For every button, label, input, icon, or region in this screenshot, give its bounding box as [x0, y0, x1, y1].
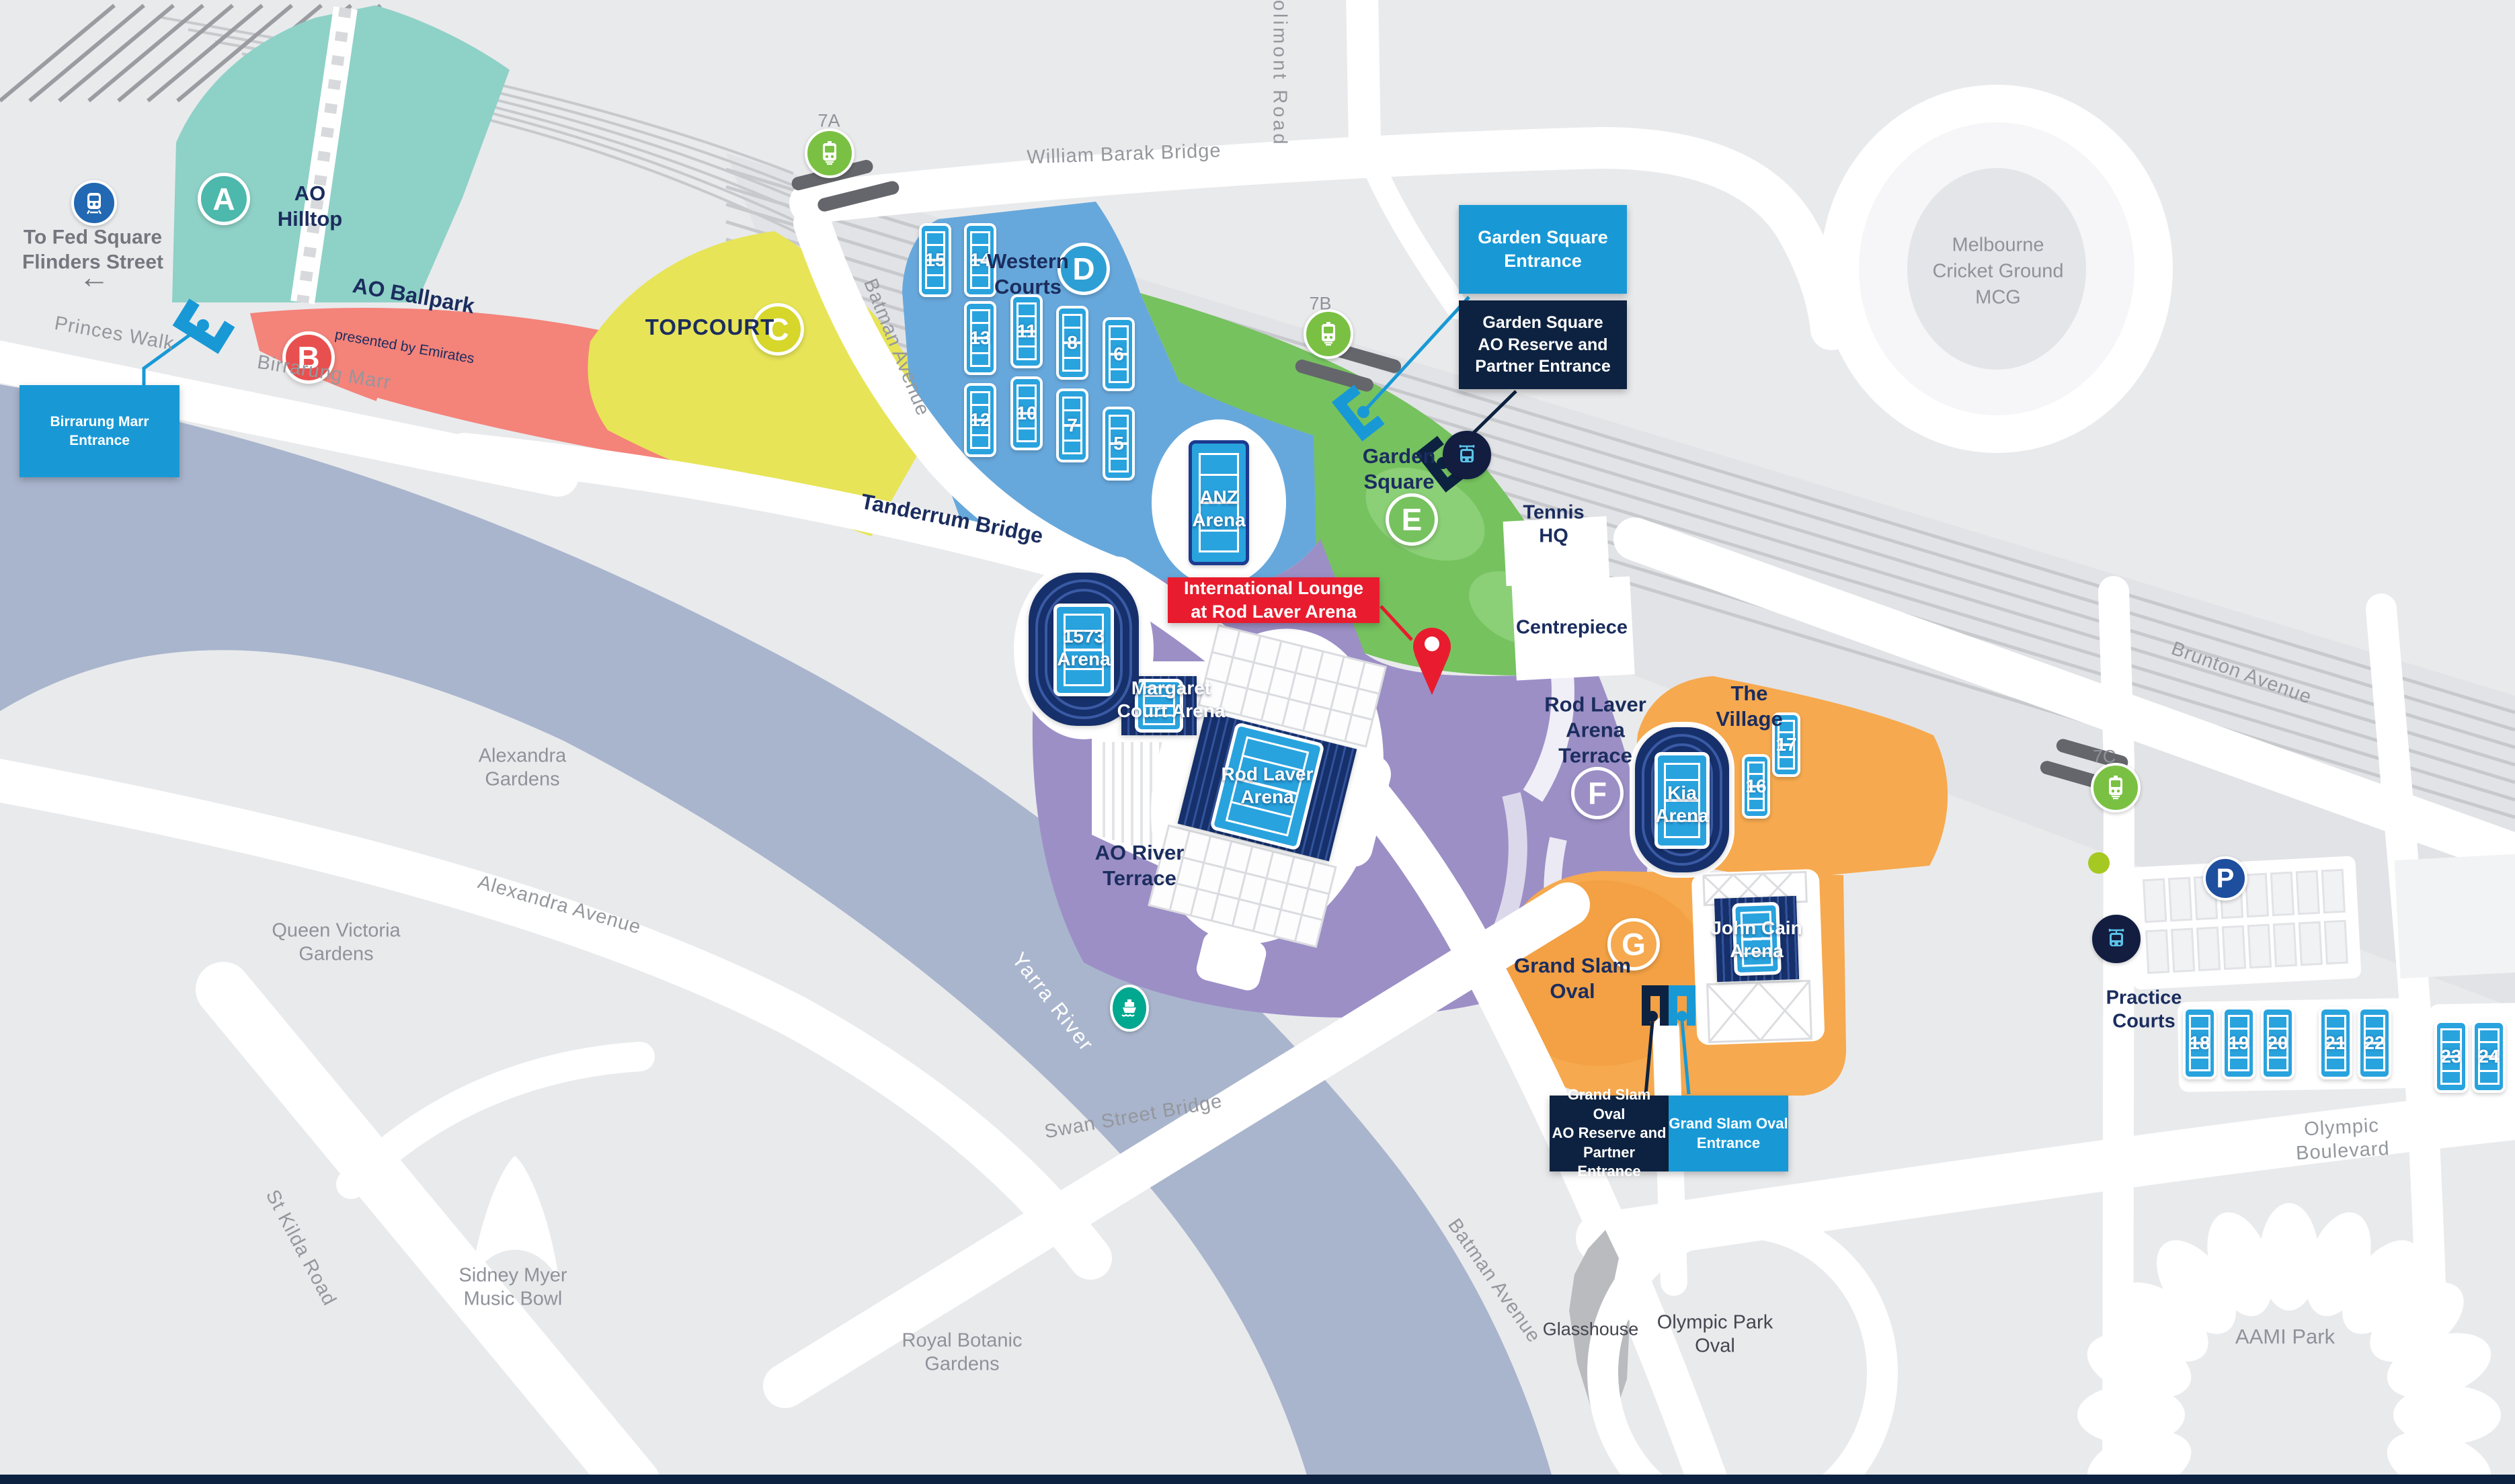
- zone-letter: A: [212, 181, 235, 217]
- zone-letter: B: [297, 339, 319, 376]
- court-number: 11: [1016, 321, 1037, 342]
- garden-square-reserve-entrance-label: Garden Square AO Reserve and Partner Ent…: [1459, 300, 1627, 389]
- tram-icon: [1304, 309, 1353, 359]
- court-number: 20: [2267, 1032, 2288, 1054]
- zone-badge-b: B: [282, 331, 335, 384]
- court: 23: [2434, 1020, 2468, 1093]
- court-number: 17: [1775, 734, 1796, 755]
- bus-icon: [1443, 431, 1491, 479]
- court-number: 18: [2189, 1032, 2210, 1054]
- court-number: 24: [2478, 1046, 2499, 1067]
- entrance-text: Grand Slam Oval AO Reserve and Partner E…: [1550, 1085, 1669, 1182]
- birrarung-marr-entrance-label: Birrarung Marr Entrance: [19, 385, 179, 477]
- zone-badge-g: G: [1607, 918, 1660, 971]
- centrepiece-building: [1511, 576, 1634, 680]
- entrance-text: Grand Slam Oval Entrance: [1669, 1114, 1788, 1153]
- court: 10: [1010, 376, 1043, 450]
- court-number: 5: [1113, 433, 1124, 454]
- court-number: 15: [924, 249, 945, 271]
- precinct-dot: [2088, 852, 2110, 874]
- court: 19: [2222, 1007, 2255, 1079]
- court: 24: [2472, 1020, 2506, 1093]
- kia-arena-court: [1654, 752, 1710, 849]
- court-number: 6: [1113, 343, 1124, 365]
- court-number: 7: [1067, 415, 1078, 436]
- tennis-hq-building: [1503, 516, 1610, 586]
- grand-slam-reserve-entrance-label: Grand Slam Oval AO Reserve and Partner E…: [1550, 1096, 1669, 1171]
- garden-square-entrance-label: Garden Square Entrance: [1459, 205, 1627, 294]
- zone-badge-e: E: [1386, 493, 1438, 546]
- zone-badge-c: C: [752, 303, 804, 356]
- entrance-text: Garden Square Entrance: [1478, 226, 1608, 273]
- zone-letter: G: [1622, 926, 1646, 962]
- entrance-text: Birrarung Marr Entrance: [19, 413, 179, 450]
- entrance-text: Garden Square AO Reserve and Partner Ent…: [1475, 312, 1610, 378]
- court-number: 16: [1745, 776, 1766, 797]
- court: 21: [2319, 1007, 2352, 1079]
- zone-letter: C: [766, 311, 789, 347]
- court-number: 22: [2364, 1032, 2385, 1054]
- court: 14: [964, 223, 996, 297]
- bus-icon: [2092, 915, 2141, 963]
- court-number: 8: [1067, 332, 1078, 354]
- anz-arena-court: [1189, 440, 1249, 565]
- ferry-icon: [1110, 985, 1149, 1032]
- zone-letter: E: [1402, 501, 1423, 538]
- highlight-text: International Lounge at Rod Laver Arena: [1184, 577, 1363, 624]
- john-cain-arena-court: [1732, 902, 1782, 976]
- map-bottom-border: [0, 1475, 2515, 1484]
- international-lounge-label: International Lounge at Rod Laver Arena: [1168, 577, 1380, 623]
- court: 6: [1103, 317, 1135, 391]
- sidney-myer-music-bowl-shape: [471, 1156, 559, 1281]
- court: 15: [919, 223, 951, 297]
- parking-icon: P: [2203, 856, 2247, 901]
- court: 12: [964, 383, 996, 457]
- zone-letter: F: [1588, 775, 1607, 811]
- court: 22: [2358, 1007, 2391, 1079]
- melbourne-park-precinct-map: 15 14 13 11 8 6 12 10 7 5 17 16 18 19 20…: [0, 0, 2515, 1484]
- court-number: 13: [969, 327, 990, 349]
- court: 5: [1103, 407, 1135, 481]
- margaret-court-arena-court: [1135, 679, 1183, 733]
- court: 17: [1772, 712, 1800, 777]
- tram-icon: [805, 128, 854, 178]
- court: 16: [1742, 754, 1770, 819]
- zone-badge-a: A: [198, 173, 250, 225]
- zone-badge-f: F: [1571, 767, 1624, 819]
- car-park: [2127, 847, 2515, 993]
- court-number: 21: [2325, 1032, 2346, 1054]
- train-icon: [71, 180, 117, 226]
- court: 20: [2261, 1007, 2294, 1079]
- court-number: 19: [2228, 1032, 2249, 1054]
- court: 8: [1056, 306, 1088, 380]
- court: 7: [1056, 388, 1088, 462]
- court-number: 23: [2440, 1046, 2461, 1067]
- zone-a-ao-hilltop: [172, 5, 510, 302]
- parking-letter: P: [2217, 864, 2235, 894]
- grand-slam-entrance-label: Grand Slam Oval Entrance: [1669, 1096, 1788, 1171]
- court-number: 14: [969, 249, 990, 271]
- court: 11: [1010, 294, 1043, 368]
- mcg-stadium: [1821, 85, 2173, 453]
- tram-icon: [2091, 763, 2141, 813]
- court: 18: [2183, 1007, 2217, 1079]
- court: 13: [964, 301, 996, 375]
- court-number: 10: [1016, 403, 1037, 424]
- arena-1573-court: [1053, 604, 1114, 696]
- zone-badge-d: D: [1057, 243, 1110, 295]
- court-number: 12: [969, 409, 990, 431]
- zone-letter: D: [1072, 251, 1094, 287]
